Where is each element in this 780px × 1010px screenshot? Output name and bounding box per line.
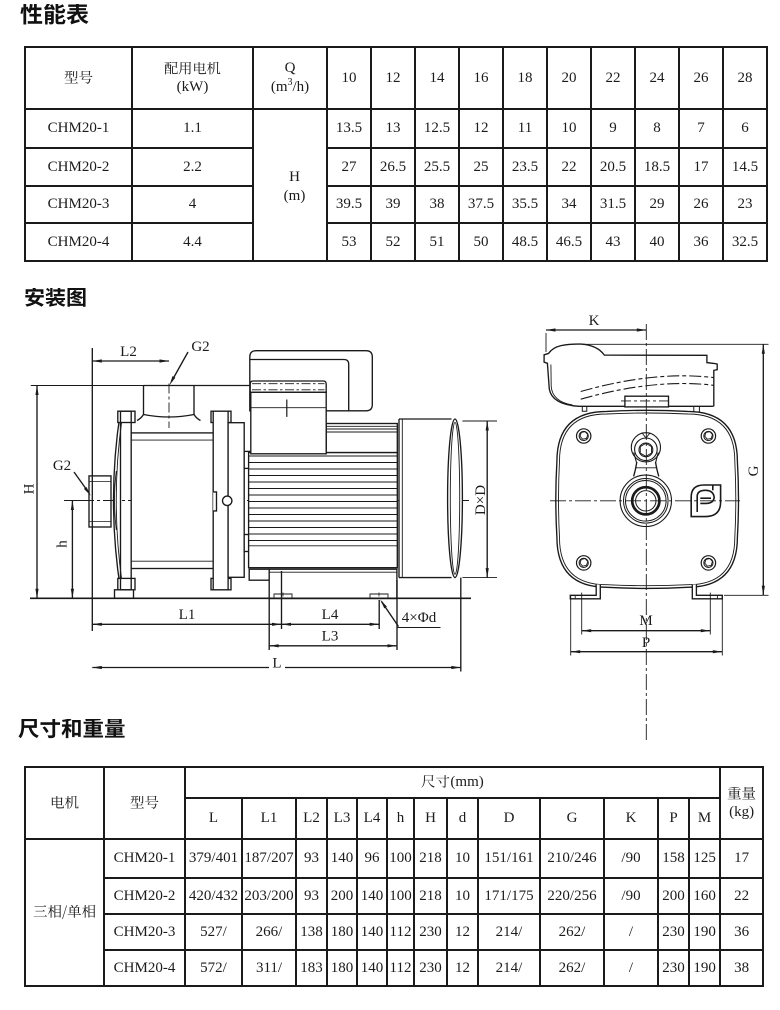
- svg-text:L2: L2: [120, 344, 137, 360]
- svg-text:D×D: D×D: [473, 485, 489, 515]
- svg-text:L4: L4: [322, 607, 339, 623]
- svg-text:M: M: [639, 613, 652, 629]
- svg-text:4×Φd: 4×Φd: [402, 610, 437, 626]
- svg-text:L1: L1: [179, 607, 196, 623]
- svg-text:G2: G2: [191, 339, 209, 355]
- svg-text:L: L: [272, 656, 281, 672]
- svg-text:G2: G2: [53, 458, 71, 474]
- svg-text:H: H: [22, 483, 38, 494]
- svg-text:G: G: [746, 465, 762, 476]
- svg-text:K: K: [589, 313, 600, 329]
- svg-text:P: P: [642, 635, 650, 651]
- svg-text:h: h: [55, 540, 71, 548]
- svg-text:L3: L3: [322, 629, 339, 645]
